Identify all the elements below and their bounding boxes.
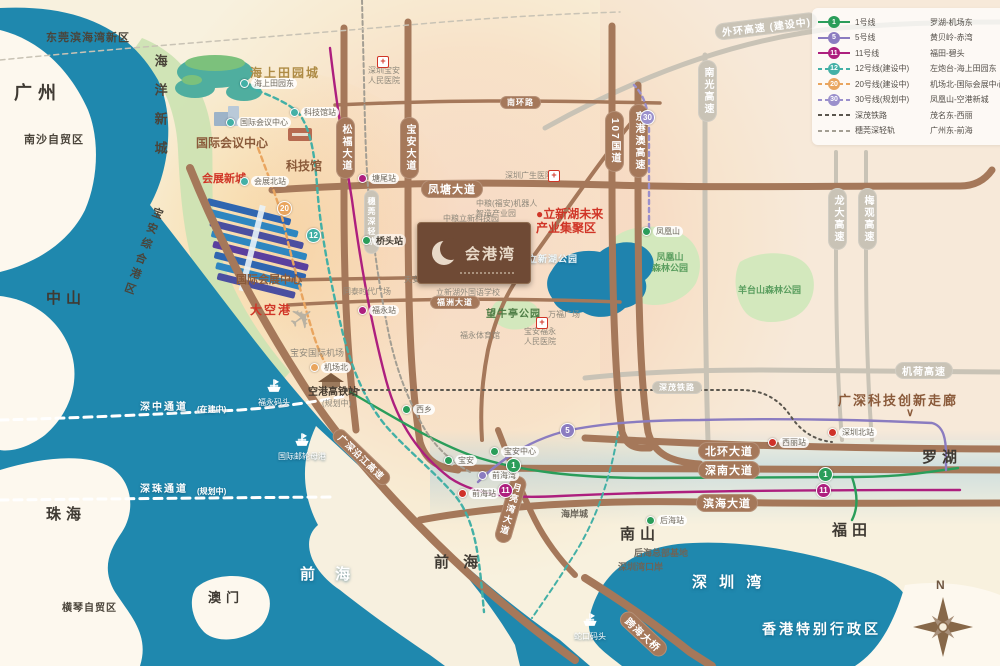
legend-line-name: 20号线(建设中): [855, 79, 925, 90]
legend-line-badge: 1: [828, 16, 840, 28]
legend-line-name: 5号线: [855, 32, 925, 43]
crescent-moon-icon: [432, 241, 456, 265]
legend-line-name: 深茂铁路: [855, 110, 925, 121]
hsr-station-icon: [322, 382, 340, 387]
legend-line-route: 机场北-国际会展中心: [930, 79, 1000, 90]
legend-line-swatch: 1: [818, 16, 850, 29]
legend-line-swatch: [818, 124, 850, 137]
legend-line-swatch: 11: [818, 47, 850, 60]
legend-line-route: 罗湖-机场东: [930, 17, 973, 28]
project-name: 会港湾: [465, 243, 516, 264]
legend-row: 深茂铁路 茂名东-西丽: [818, 109, 1000, 122]
legend-line-route: 广州东-前海: [930, 125, 973, 136]
legend-line-swatch: 30: [818, 93, 850, 106]
legend-line-name: 11号线: [855, 48, 925, 59]
map-root: 东莞滨海湾新区广州南沙自贸区中山珠海横琴自贸区澳门前 海前 海南山福田罗湖深 圳…: [0, 0, 1000, 666]
legend-line-stroke: [818, 130, 850, 132]
legend-line-name: 穗莞深轻轨: [855, 125, 925, 136]
legend-line-badge: 12: [828, 63, 840, 75]
legend-line-name: 12号线(建设中): [855, 63, 925, 74]
legend-line-badge: 20: [828, 78, 840, 90]
legend-line-swatch: 20: [818, 78, 850, 91]
legend-line-swatch: 12: [818, 62, 850, 75]
legend-line-name: 1号线: [855, 17, 925, 28]
legend-line-badge: 5: [828, 32, 840, 44]
legend-line-route: 黄贝岭-赤湾: [930, 32, 973, 43]
legend-line-badge: 11: [828, 47, 840, 59]
project-logo-card: 会港湾: [417, 222, 531, 284]
metro-legend: 1 1号线 罗湖-机场东 5 5号线 黄贝岭-赤湾 11 11号线 福田-碧头: [812, 8, 1000, 145]
legend-line-name: 30号线(规划中): [855, 94, 925, 105]
legend-row: 12 12号线(建设中) 左炮台-海上田园东: [818, 62, 1000, 75]
legend-line-stroke: [818, 114, 850, 116]
legend-row: 11 11号线 福田-碧头: [818, 47, 1000, 60]
legend-line-swatch: [818, 109, 850, 122]
legend-line-route: 茂名东-西丽: [930, 110, 973, 121]
legend-row: 穗莞深轻轨 广州东-前海: [818, 124, 1000, 137]
legend-row: 20 20号线(建设中) 机场北-国际会展中心: [818, 78, 1000, 91]
legend-line-route: 凤凰山-空港新城: [930, 94, 989, 105]
legend-line-route: 左炮台-海上田园东: [930, 63, 997, 74]
legend-line-badge: 30: [828, 94, 840, 106]
logo-subtext-line: [460, 272, 514, 274]
legend-row: 30 30号线(规划中) 凤凰山-空港新城: [818, 93, 1000, 106]
legend-row: 5 5号线 黄贝岭-赤湾: [818, 31, 1000, 44]
legend-line-swatch: 5: [818, 31, 850, 44]
legend-row: 1 1号线 罗湖-机场东: [818, 16, 1000, 29]
legend-line-route: 福田-碧头: [930, 48, 965, 59]
sea-pastoral-islands: [185, 55, 245, 71]
